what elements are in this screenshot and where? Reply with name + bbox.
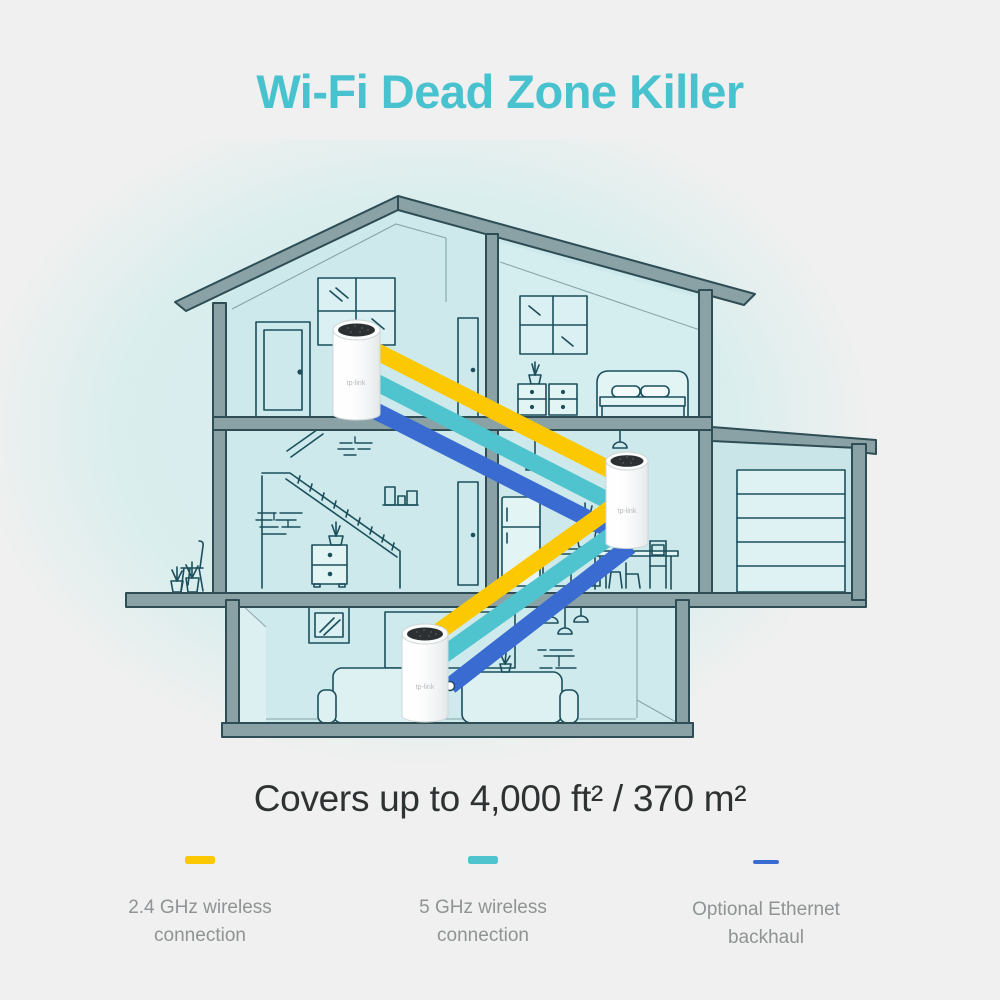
legend-swatch-ethernet	[753, 856, 779, 866]
bed-icon	[597, 371, 688, 417]
legend-item-5ghz: 5 GHz wireless connection	[353, 856, 613, 949]
wall-left	[213, 303, 226, 595]
wall-ground-right	[676, 600, 689, 723]
house-diagram: tp-link tp-link tp-link	[0, 140, 1000, 770]
legend-item-24ghz: 2.4 GHz wireless connection	[70, 856, 330, 949]
legend-label-24ghz: 2.4 GHz wireless connection	[70, 894, 330, 949]
legend: 2.4 GHz wireless connection 5 GHz wirele…	[0, 856, 1000, 976]
legend-swatch-5ghz	[468, 856, 498, 864]
product-infographic: Wi-Fi Dead Zone Killer	[0, 0, 1000, 1000]
sofa-icon	[462, 672, 578, 723]
coverage-text: Covers up to 4,000 ft² / 370 m²	[0, 778, 1000, 820]
legend-label-ethernet: Optional Ethernet backhaul	[636, 896, 896, 951]
legend-label-5ghz: 5 GHz wireless connection	[353, 894, 613, 949]
nightstand-icon	[518, 384, 546, 415]
deco-unit-lower: tp-link	[402, 624, 448, 722]
drawer-cabinet-icon	[312, 545, 347, 587]
partition-upper	[486, 234, 498, 419]
wall-right	[699, 290, 712, 600]
legend-item-ethernet: Optional Ethernet backhaul	[636, 856, 896, 951]
bedroom2-window-icon	[520, 296, 587, 354]
wall-mirror-icon	[309, 607, 349, 643]
nightstand-icon	[549, 384, 577, 415]
garage-door-icon	[737, 470, 845, 592]
deco-logo: tp-link	[416, 684, 435, 691]
deco-unit-middle: tp-link	[606, 452, 648, 549]
slab-ground	[222, 723, 693, 737]
garage-wall-right	[852, 444, 866, 600]
page-title: Wi-Fi Dead Zone Killer	[0, 64, 1000, 119]
deco-logo: tp-link	[347, 380, 366, 387]
legend-swatch-24ghz	[185, 856, 215, 864]
partition-mid	[486, 430, 498, 595]
deco-logo: tp-link	[618, 508, 637, 515]
wall-ground-left	[226, 600, 239, 723]
deco-unit-upper: tp-link	[333, 320, 380, 420]
